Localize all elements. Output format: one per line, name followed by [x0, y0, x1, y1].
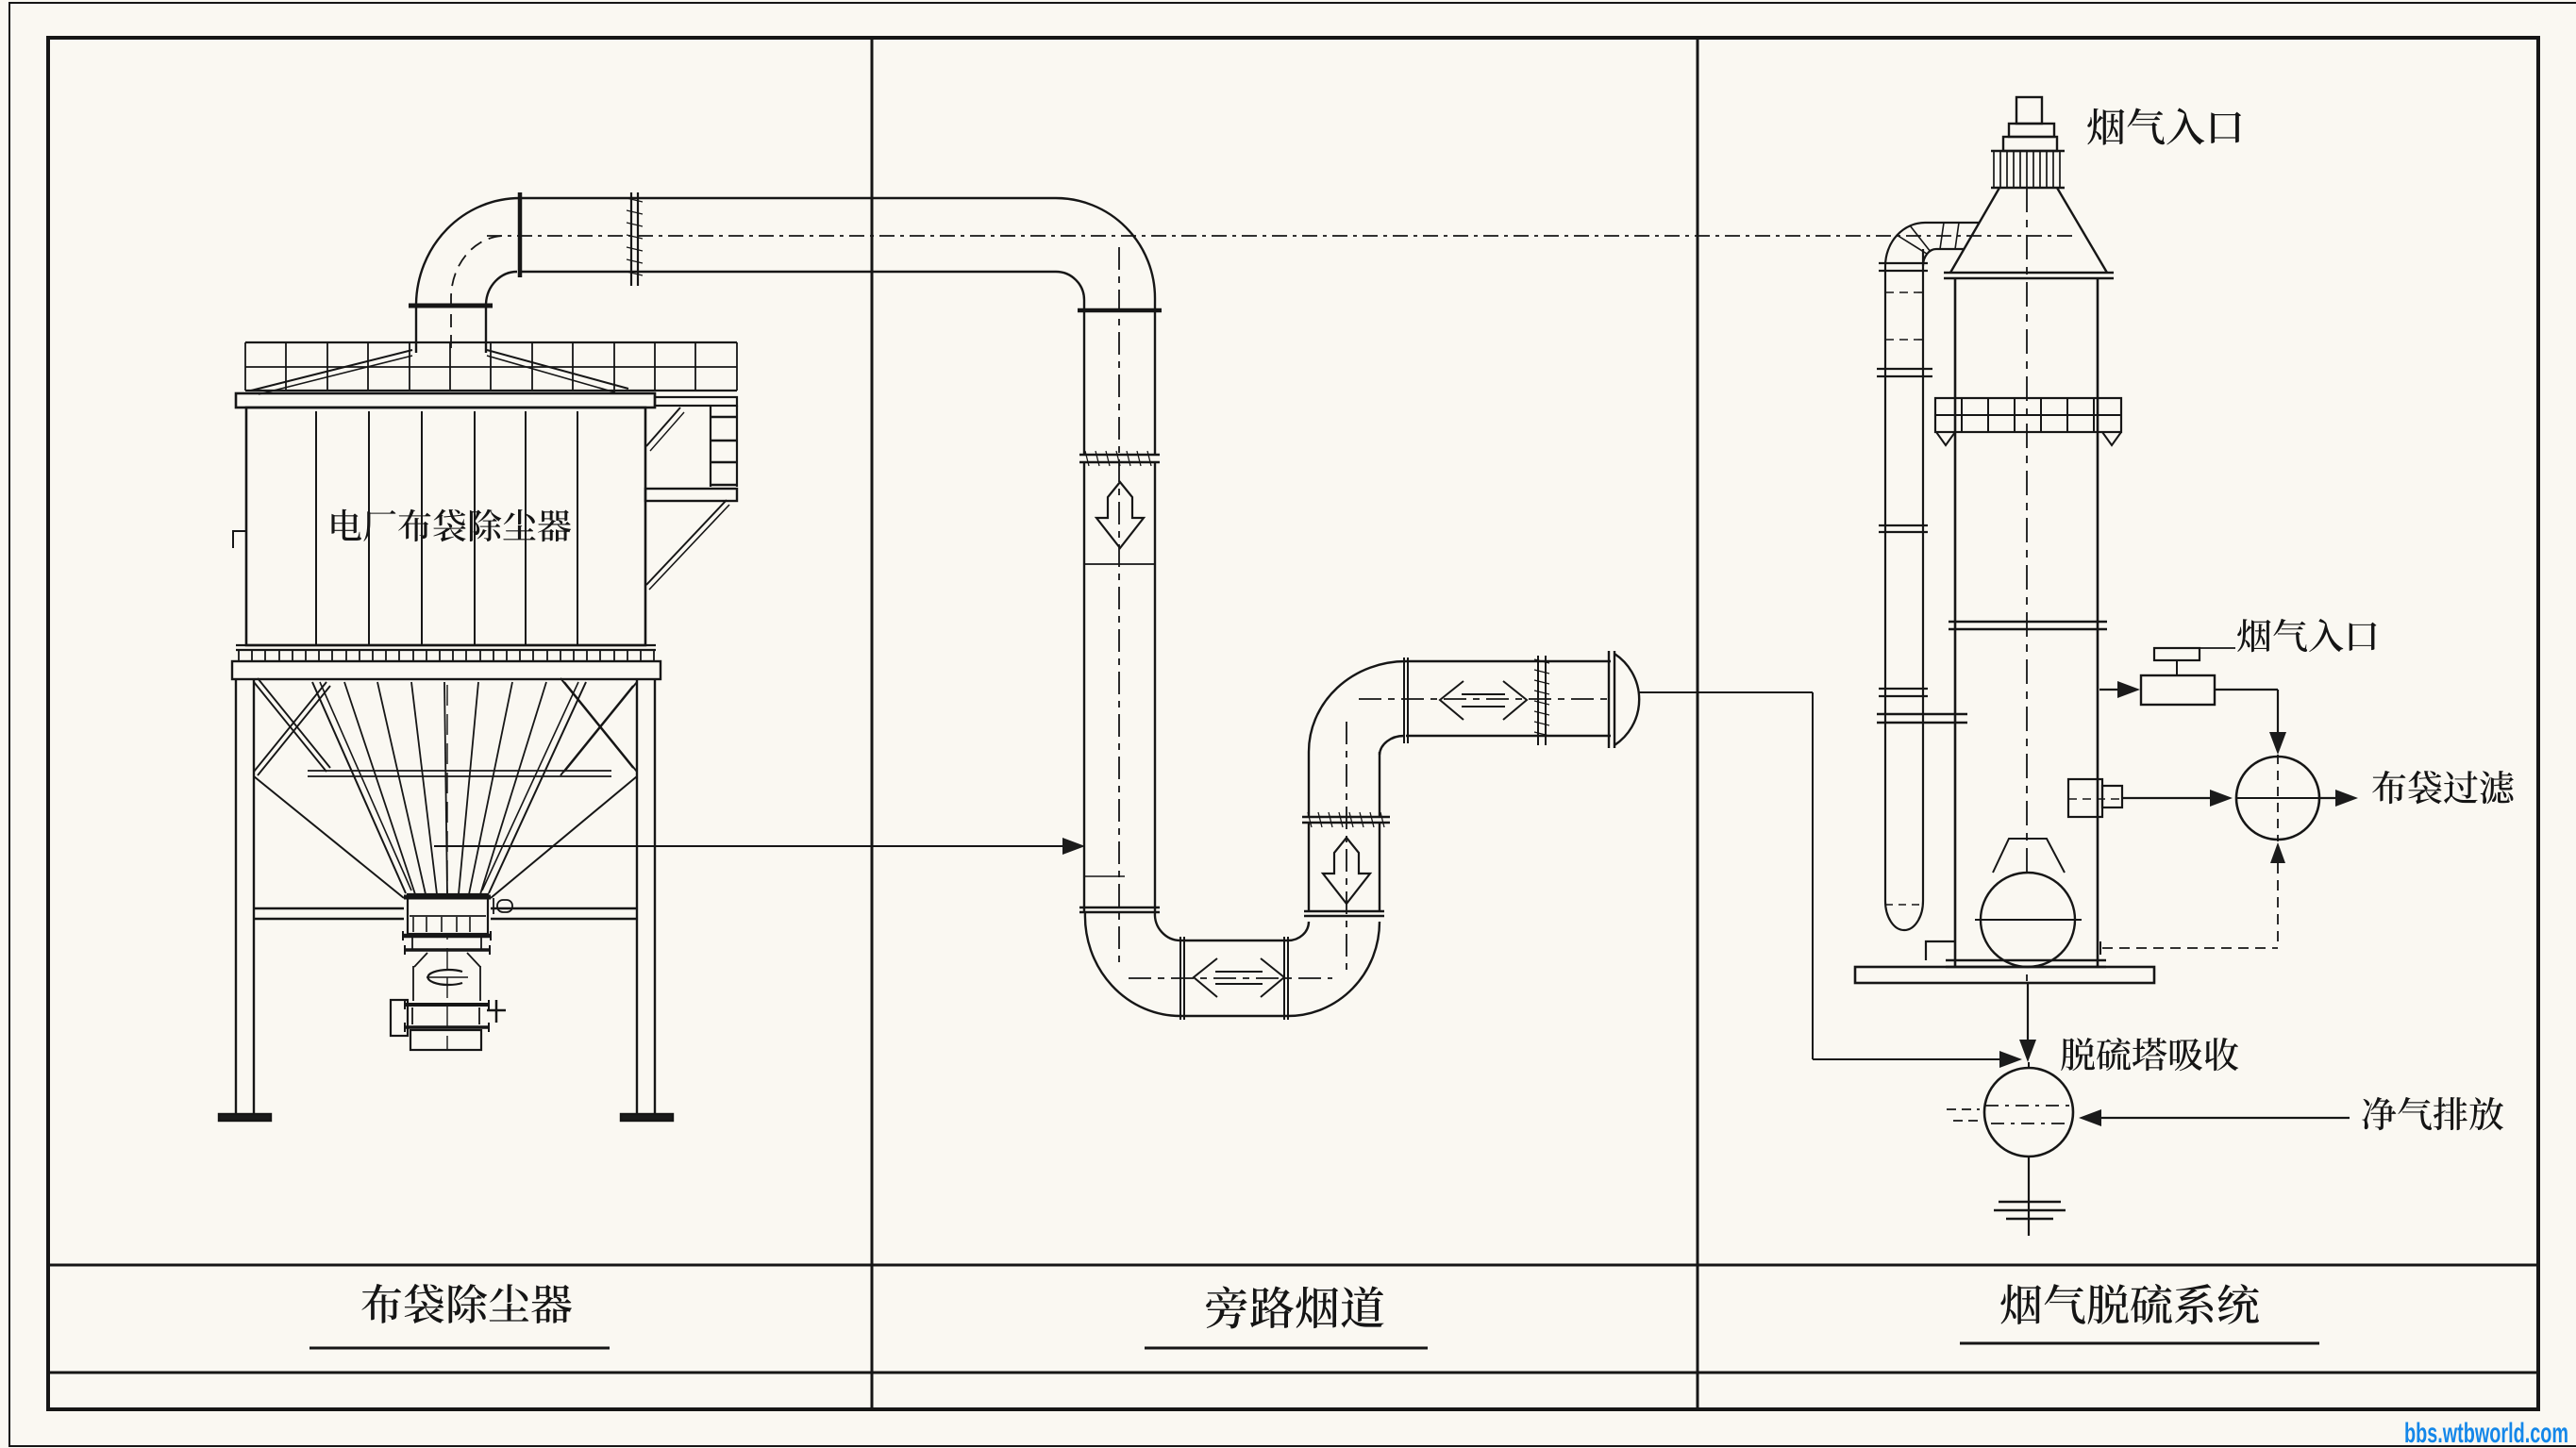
- svg-text:bbs.wtbworld.com: bbs.wtbworld.com: [2404, 1418, 2568, 1448]
